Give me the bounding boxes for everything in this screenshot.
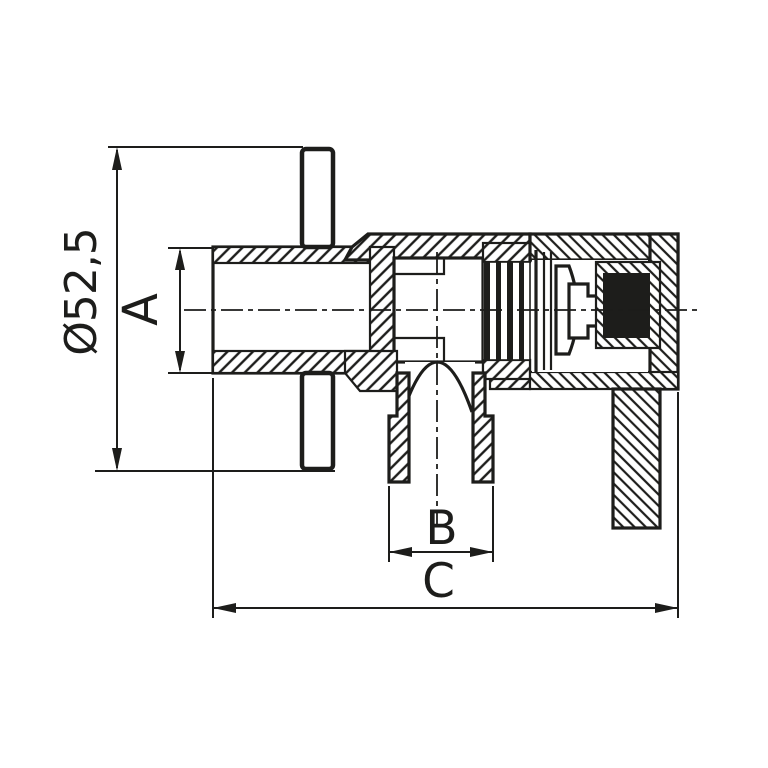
handle-lever — [613, 389, 660, 528]
arrowhead-left-icon — [389, 547, 412, 557]
outlet-pipe — [389, 362, 493, 482]
dim-label-b: B — [425, 501, 456, 556]
dimension-b: B — [389, 486, 493, 562]
dim-label-a: A — [113, 293, 169, 326]
arrowhead-right-icon — [655, 603, 678, 613]
arrowhead-down-icon — [175, 351, 185, 373]
stem-seal — [603, 273, 650, 338]
arrowhead-up-icon — [175, 248, 185, 270]
arrowhead-up-icon — [112, 147, 122, 170]
dim-label-diameter: Ø52,5 — [56, 228, 107, 356]
arrowhead-right-icon — [470, 547, 493, 557]
dim-label-c: C — [422, 554, 454, 609]
cartridge-plate-stack — [483, 243, 530, 379]
arrowhead-left-icon — [213, 603, 236, 613]
technical-drawing-page: Ø52,5 A B C — [0, 0, 768, 768]
valve-drawing: Ø52,5 A B C — [0, 0, 768, 768]
bonnet-cap — [530, 234, 678, 389]
arrowhead-down-icon — [112, 448, 122, 471]
